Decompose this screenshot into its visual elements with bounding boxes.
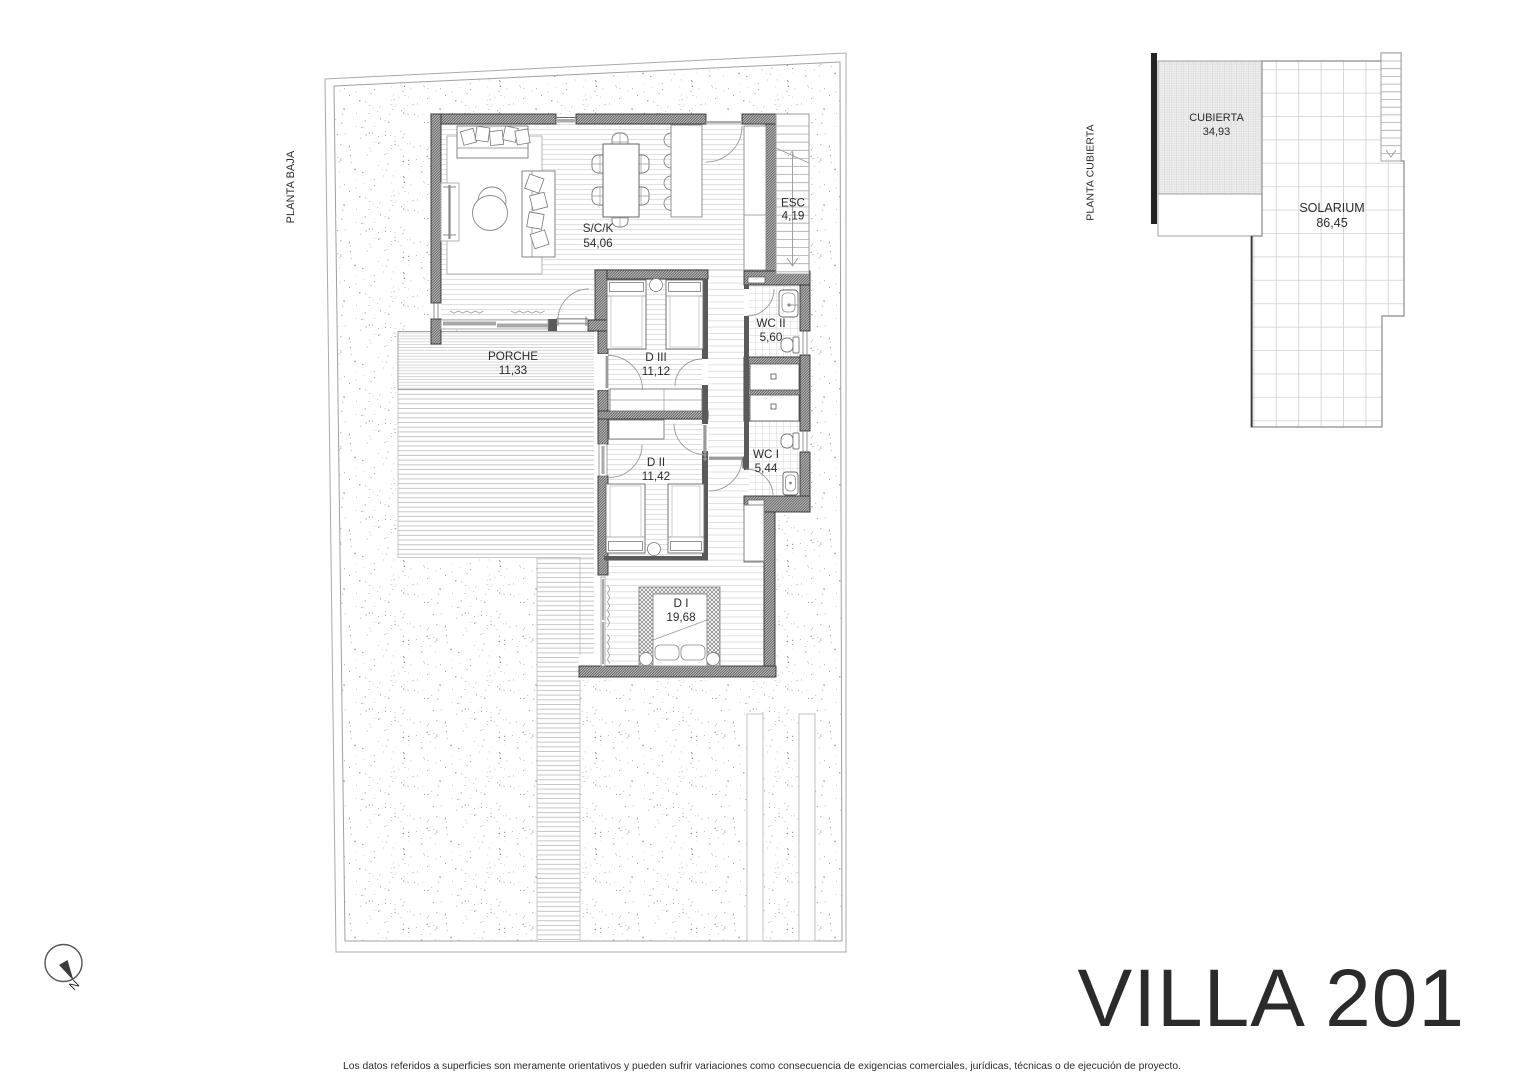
svg-text:19,68: 19,68 bbox=[666, 611, 695, 624]
svg-text:D II: D II bbox=[647, 456, 665, 469]
svg-text:PLANTA BAJA: PLANTA BAJA bbox=[285, 150, 297, 223]
svg-text:D I: D I bbox=[674, 597, 689, 610]
svg-text:11,33: 11,33 bbox=[499, 364, 527, 377]
svg-text:S/C/K: S/C/K bbox=[583, 222, 614, 235]
svg-text:VILLA 201: VILLA 201 bbox=[1078, 953, 1465, 1044]
svg-text:5,44: 5,44 bbox=[755, 462, 778, 475]
svg-text:ESC: ESC bbox=[781, 197, 805, 210]
svg-text:WC I: WC I bbox=[753, 448, 779, 461]
svg-text:11,12: 11,12 bbox=[642, 365, 670, 378]
svg-text:WC II: WC II bbox=[756, 317, 785, 330]
svg-text:D III: D III bbox=[645, 351, 666, 364]
svg-text:PLANTA CUBIERTA: PLANTA CUBIERTA bbox=[1086, 124, 1097, 221]
svg-text:SOLARIUM: SOLARIUM bbox=[1299, 201, 1364, 215]
svg-text:PORCHE: PORCHE bbox=[488, 350, 538, 363]
svg-text:Los datos referidos a superfic: Los datos referidos a superficies son me… bbox=[343, 1061, 1181, 1072]
svg-text:11,42: 11,42 bbox=[642, 470, 670, 483]
svg-text:5,60: 5,60 bbox=[760, 331, 783, 344]
svg-text:54,06: 54,06 bbox=[583, 237, 612, 250]
svg-text:4,19: 4,19 bbox=[782, 210, 805, 223]
svg-text:86,45: 86,45 bbox=[1316, 216, 1347, 230]
svg-text:34,93: 34,93 bbox=[1203, 126, 1231, 138]
svg-text:CUBIERTA: CUBIERTA bbox=[1189, 112, 1244, 124]
